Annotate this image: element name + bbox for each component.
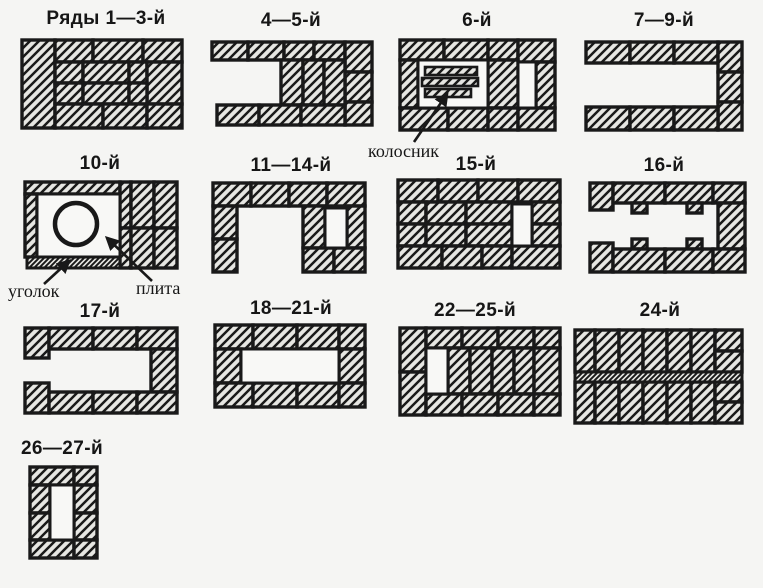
course-title-22-25: 22—25-й [434,300,516,322]
diagram-course-17 [21,324,181,417]
diagram-course-22-25 [396,324,564,419]
stove-brick-courses-figure: Ряды 1—3-й 4—5-й 6-й 7—9-й 10-й 11—14-й … [0,0,763,588]
course-title-11-14: 11—14-й [250,155,331,177]
course-title-15: 15-й [456,154,497,176]
course-title-10: 10-й [80,153,121,175]
diagram-course-16 [586,179,749,276]
course-title-24: 24-й [640,300,681,322]
diagram-course-24 [571,326,746,427]
course-title-26-27: 26—27-й [21,438,103,460]
course-title-18-21: 18—21-й [250,298,332,320]
course-title-6: 6-й [462,10,492,32]
diagram-course-6 [396,36,559,134]
label-angle: уголок [8,281,59,302]
diagram-course-15 [394,176,564,272]
course-title-7-9: 7—9-й [634,10,694,32]
diagram-course-7-9 [582,38,746,134]
course-title-1-3: Ряды 1—3-й [46,8,165,30]
course-title-17: 17-й [80,301,121,323]
diagram-course-4-5 [206,38,376,129]
course-title-4-5: 4—5-й [261,10,321,32]
label-grate: колосник [368,141,439,162]
diagram-course-11-14 [209,179,369,276]
diagram-course-10 [21,178,181,272]
course-title-16: 16-й [644,155,685,177]
diagram-course-1-3 [18,36,186,132]
diagram-course-18-21 [211,321,369,411]
diagram-course-26-27 [26,463,101,562]
label-plate: плита [136,278,180,299]
